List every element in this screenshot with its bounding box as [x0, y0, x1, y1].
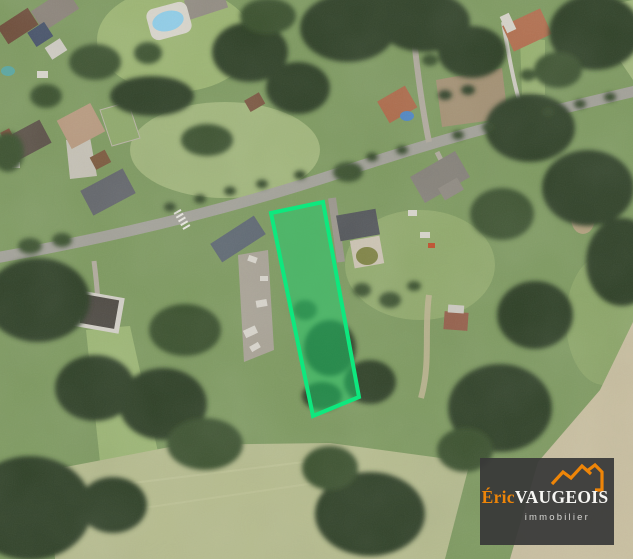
- brand-last-name: VAUGEOIS: [515, 487, 609, 507]
- brand-first-name: Éric: [482, 487, 515, 507]
- brand-name: ÉricVAUGEOIS: [480, 489, 610, 507]
- listing-aerial-image: ÉricVAUGEOIS immobilier: [0, 0, 633, 559]
- agency-logo-box: ÉricVAUGEOIS immobilier: [480, 458, 614, 545]
- brand-tagline: immobilier: [525, 512, 590, 523]
- roofline-peaks: [552, 466, 591, 484]
